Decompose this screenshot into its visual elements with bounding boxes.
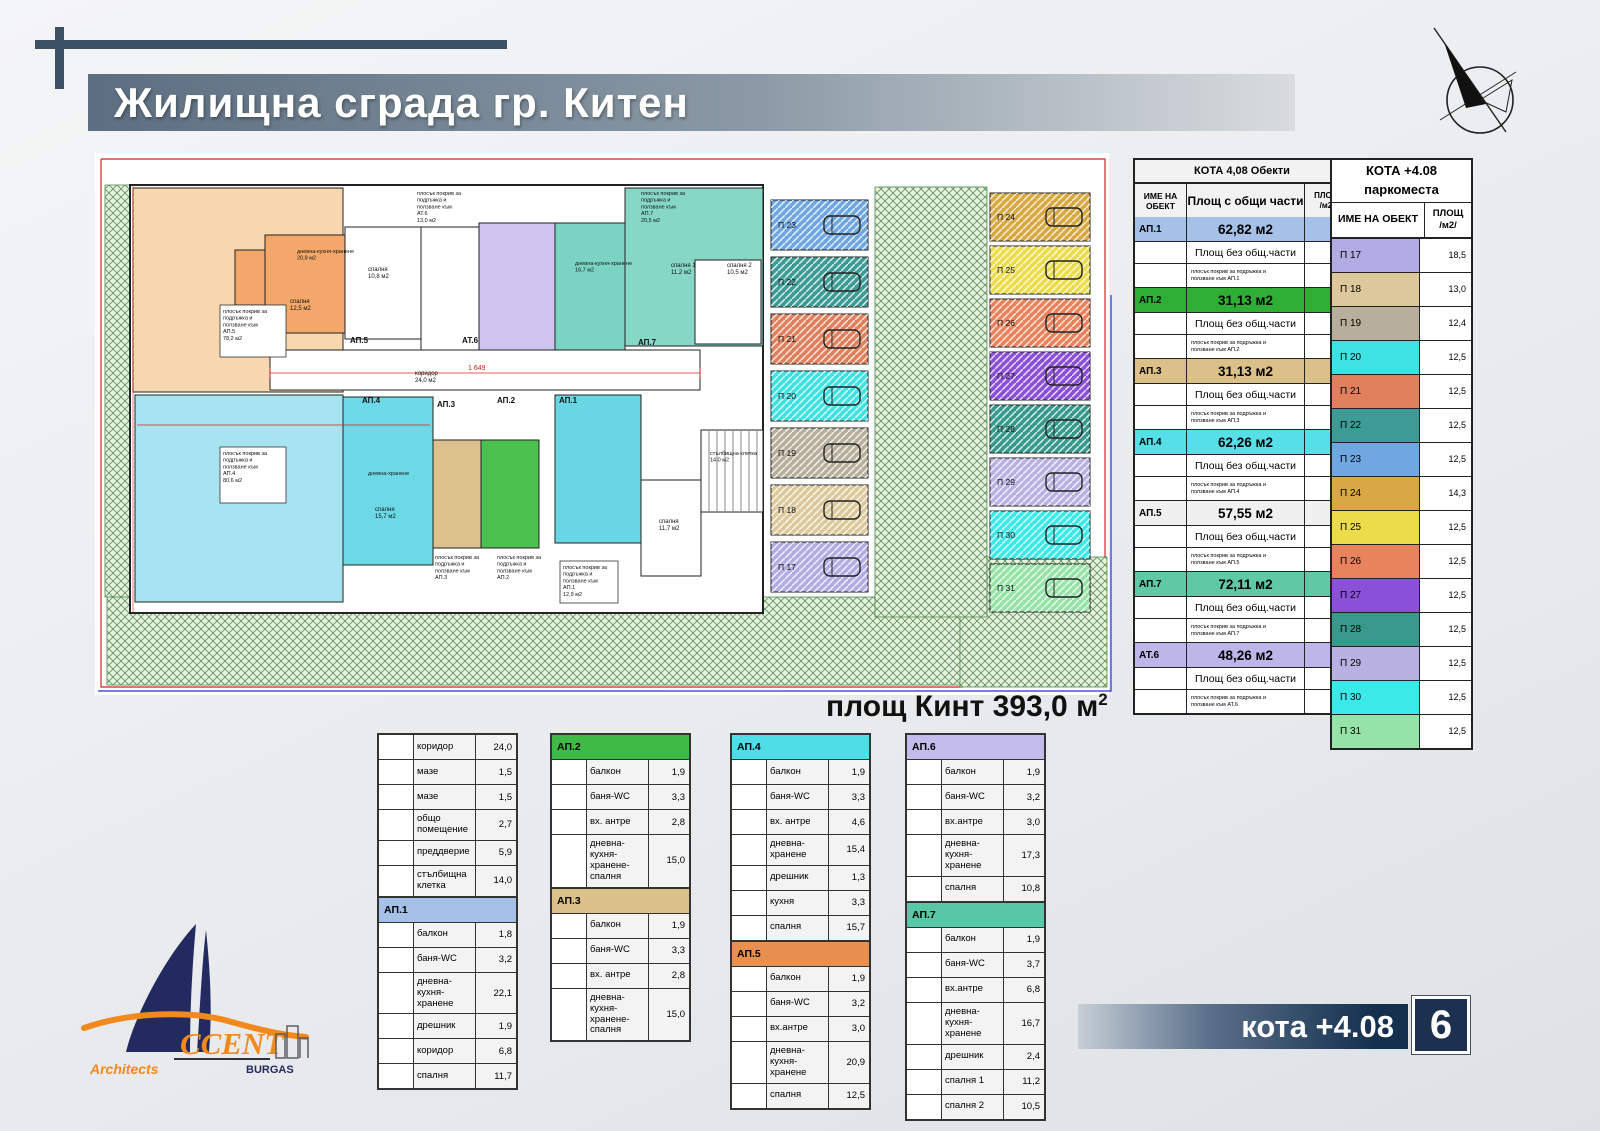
row-spacer	[379, 735, 414, 759]
objects-row-net: Площ без общ.части43,1	[1135, 667, 1349, 689]
object-name: АТ.6	[1135, 643, 1187, 667]
room-area: 1,9	[1004, 760, 1044, 784]
room-table-block: АП.3балкон1,9баня-WC3,3вх. антре2,8дневн…	[550, 889, 691, 1043]
roof-note: плосък покрив за подръжка иползване към …	[1187, 335, 1305, 358]
objects-row-roof: плосък покрив за подръжка иползване към …	[1135, 547, 1349, 571]
spacer	[1135, 477, 1187, 500]
room-area: 2,8	[649, 810, 689, 834]
parking-row: П 2112,5	[1332, 374, 1471, 408]
row-spacer	[379, 923, 414, 947]
roof-note: плосък покрив за подръжка иползване към …	[1187, 690, 1305, 713]
room-table-block: АП.4балкон1,9баня-WC3,3вх. антре4,6дневн…	[730, 733, 871, 942]
room-label: дрешник	[942, 1045, 1004, 1069]
room-label: баня-WC	[414, 948, 476, 972]
objects-row-net: Площ без общ.части64,4	[1135, 596, 1349, 618]
room-label: балкон	[414, 923, 476, 947]
row-spacer	[379, 810, 414, 840]
table-row: спалня 210,5	[907, 1095, 1044, 1119]
table-row: дрешник1,9	[379, 1014, 516, 1039]
room-label: баня-WC	[767, 992, 829, 1016]
row-spacer	[379, 1064, 414, 1088]
row-spacer	[552, 810, 587, 834]
room-area: 3,0	[1004, 810, 1044, 834]
table-row: балкон1,9	[552, 760, 689, 785]
room-area: 1,3	[829, 866, 869, 890]
room-label: балкон	[587, 760, 649, 784]
row-spacer	[732, 916, 767, 940]
row-spacer	[552, 989, 587, 1041]
plan-room	[235, 250, 265, 305]
room-area: 15,7	[829, 916, 869, 940]
table-row: дневна-кухня-хранене22,1	[379, 973, 516, 1015]
plan-room	[343, 397, 433, 565]
table-row: спалня11,7	[379, 1064, 516, 1088]
net-label: Площ без общ.части	[1187, 313, 1305, 334]
object-name: АП.2	[1135, 288, 1187, 312]
room-area: 22,1	[476, 973, 516, 1014]
room-label: стълбищна клетка	[414, 866, 476, 896]
plan-label: спалня15,7 м2	[375, 507, 396, 520]
room-table-block: АП.2балкон1,9баня-WC3,3вх. антре2,8дневн…	[550, 733, 691, 889]
corner-mark-horizontal	[35, 40, 507, 49]
table-row: дрешник1,3	[732, 866, 869, 891]
objects-table-header: ИМЕ НА ОБЕКТ Площ с общи части ПЛОЩ/м2/	[1135, 183, 1349, 217]
parking-row: П 2414,3	[1332, 476, 1471, 510]
object-total-area: 31,13 м2	[1187, 359, 1305, 383]
parking-row: П 2012,5	[1332, 340, 1471, 374]
col-header-name: ИМЕ НА ОБЕКТ	[1332, 203, 1425, 237]
plan-label: АТ.6	[462, 336, 479, 345]
spacer	[1135, 406, 1187, 429]
parking-row: П 1718,5	[1332, 238, 1471, 272]
parking-name: П 29	[1332, 647, 1420, 680]
parking-stall-label: П 17	[778, 562, 796, 572]
corner-mark-vertical	[55, 27, 64, 89]
room-label: дневна-хранене	[767, 835, 829, 865]
room-table-header: АП.6	[907, 735, 1044, 760]
room-label: вх. антре	[587, 810, 649, 834]
plan-label: АП.2	[497, 396, 516, 405]
room-label: балкон	[587, 914, 649, 938]
table-row: балкон1,8	[379, 923, 516, 948]
room-table-block: коридор24,0мазе1,5мазе1,5общо помещение2…	[377, 733, 518, 898]
row-spacer	[732, 891, 767, 915]
room-area: 2,8	[649, 964, 689, 988]
table-row: дневна-кухня-хранене-спалня15,0	[552, 835, 689, 887]
parking-table: КОТА +4.08паркоместа ИМЕ НА ОБЕКТ ПЛОЩ/м…	[1330, 158, 1473, 750]
room-table-column: коридор24,0мазе1,5мазе1,5общо помещение2…	[377, 733, 518, 1090]
table-row: балкон1,9	[907, 928, 1044, 953]
parking-area: 12,5	[1420, 681, 1471, 714]
objects-row-roof: плосък покрив за подръжка иползване към …	[1135, 689, 1349, 713]
plan-label: АП.1	[559, 396, 578, 405]
parking-row: П 1813,0	[1332, 272, 1471, 306]
room-area: 15,0	[649, 835, 689, 887]
room-label: вх.антре	[767, 1017, 829, 1041]
room-area: 20,9	[829, 1042, 869, 1083]
room-area: 1,9	[1004, 928, 1044, 952]
room-area: 1,9	[649, 760, 689, 784]
row-spacer	[732, 1017, 767, 1041]
objects-row-main: АП.331,13 м2	[1135, 358, 1349, 383]
table-row: коридор6,8	[379, 1039, 516, 1064]
room-area: 3,2	[829, 992, 869, 1016]
objects-row-roof: плосък покрив за подръжка иползване към …	[1135, 618, 1349, 642]
roof-note: плосък покрив за подръжка иползване към …	[1187, 548, 1305, 571]
row-spacer	[907, 785, 942, 809]
plan-room	[555, 223, 625, 351]
table-row: баня-WC3,2	[907, 785, 1044, 810]
table-row: баня-WC3,7	[907, 953, 1044, 978]
table-row: балкон1,9	[732, 760, 869, 785]
parking-row: П 2312,5	[1332, 442, 1471, 476]
parking-stall-label: П 24	[997, 212, 1015, 222]
room-label: спалня 2	[942, 1095, 1004, 1119]
room-table-header: АП.7	[907, 903, 1044, 928]
room-area: 3,2	[1004, 785, 1044, 809]
objects-row-net: Площ без общ.части27,8	[1135, 312, 1349, 334]
room-area: 3,3	[649, 939, 689, 963]
plan-label: спалня12,5 м2	[290, 299, 311, 312]
room-area: 1,9	[829, 967, 869, 991]
row-spacer	[907, 835, 942, 876]
roof-note: плосък покрив за подръжка иползване към …	[1187, 477, 1305, 500]
spacer	[1135, 264, 1187, 287]
room-area: 1,9	[476, 1014, 516, 1038]
row-spacer	[907, 1070, 942, 1094]
spacer	[1135, 597, 1187, 618]
objects-table: КОТА 4,08 Обекти ИМЕ НА ОБЕКТ Площ с общ…	[1133, 158, 1351, 715]
plan-label: АП.5	[350, 336, 369, 345]
parking-stall-label: П 18	[778, 505, 796, 515]
room-label: баня-WC	[942, 785, 1004, 809]
room-label: спалня	[767, 1084, 829, 1108]
spacer	[1135, 619, 1187, 642]
room-area: 2,4	[1004, 1045, 1044, 1069]
objects-row-net: Площ без общ.части27,8	[1135, 383, 1349, 405]
parking-area: 12,4	[1420, 307, 1471, 340]
row-spacer	[907, 953, 942, 977]
room-area: 6,8	[476, 1039, 516, 1063]
row-spacer	[379, 973, 414, 1014]
net-label: Площ без общ.части	[1187, 526, 1305, 547]
room-label: дрешник	[414, 1014, 476, 1038]
floor-plan: П 23П 22П 21П 20П 19П 18П 17П 24П 25П 26…	[85, 145, 1125, 705]
row-spacer	[732, 785, 767, 809]
room-area: 6,8	[1004, 978, 1044, 1002]
row-spacer	[552, 760, 587, 784]
parking-table-header: ИМЕ НА ОБЕКТ ПЛОЩ/м2/	[1332, 203, 1471, 238]
plot-kint-label: площ Кинт 393,0 м2	[826, 690, 1108, 724]
spacer	[1135, 690, 1187, 713]
room-area: 12,5	[829, 1084, 869, 1108]
parking-area: 12,5	[1420, 545, 1471, 578]
room-label: дневна-кухня-хранене	[767, 1042, 829, 1083]
room-area: 15,0	[649, 989, 689, 1041]
sheet-number: 6	[1430, 1003, 1452, 1048]
plan-room	[421, 227, 479, 351]
room-area: 1,9	[649, 914, 689, 938]
objects-row-net: Площ без общ.части56,1	[1135, 241, 1349, 263]
table-row: общо помещение2,7	[379, 810, 516, 841]
spacer	[1135, 548, 1187, 571]
room-area: 3,3	[649, 785, 689, 809]
row-spacer	[552, 835, 587, 887]
room-label: дневна-кухня-хранене-спалня	[587, 835, 649, 887]
objects-row-main: АП.231,13 м2	[1135, 287, 1349, 312]
net-label: Площ без общ.части	[1187, 242, 1305, 263]
parking-stall-label: П 27	[997, 371, 1015, 381]
table-row: баня-WC3,2	[379, 948, 516, 973]
room-label: вх. антре	[587, 964, 649, 988]
parking-stall-label: П 21	[778, 334, 796, 344]
parking-area: 13,0	[1420, 273, 1471, 306]
row-spacer	[552, 914, 587, 938]
room-area: 2,7	[476, 810, 516, 840]
parking-name: П 23	[1332, 443, 1420, 476]
room-label: спалня	[942, 877, 1004, 901]
parking-name: П 24	[1332, 477, 1420, 510]
net-label: Площ без общ.части	[1187, 597, 1305, 618]
table-row: спалня12,5	[732, 1084, 869, 1108]
plan-label: дневна-хранене	[368, 471, 409, 477]
spacer	[1135, 335, 1187, 358]
parking-row: П 3112,5	[1332, 714, 1471, 748]
room-table-column: АП.4балкон1,9баня-WC3,3вх. антре4,6дневн…	[730, 733, 871, 1110]
table-row: преддверие5,9	[379, 841, 516, 866]
room-label: преддверие	[414, 841, 476, 865]
room-table-header: АП.1	[379, 898, 516, 923]
room-label: мазе	[414, 760, 476, 784]
room-area: 3,2	[476, 948, 516, 972]
col-header-area: ПЛОЩ/м2/	[1425, 203, 1471, 237]
parking-stall-label: П 19	[778, 448, 796, 458]
compass-rose-icon	[1420, 20, 1530, 145]
row-spacer	[732, 866, 767, 890]
object-name: АП.3	[1135, 359, 1187, 383]
object-name: АП.1	[1135, 217, 1187, 241]
object-name: АП.7	[1135, 572, 1187, 596]
table-row: баня-WC3,3	[732, 785, 869, 810]
room-label: спалня 1	[942, 1070, 1004, 1094]
room-label: баня-WC	[587, 785, 649, 809]
plan-room	[555, 395, 641, 543]
plan-label: 1 649	[468, 365, 486, 372]
row-spacer	[907, 928, 942, 952]
room-label: общо помещение	[414, 810, 476, 840]
parking-area: 12,5	[1420, 443, 1471, 476]
room-table-block: АП.7балкон1,9баня-WC3,7вх.антре6,8дневна…	[905, 903, 1046, 1121]
table-row: коридор24,0	[379, 735, 516, 760]
objects-row-roof: плосък покрив за подръжка иползване към …	[1135, 334, 1349, 358]
net-label: Площ без общ.части	[1187, 668, 1305, 689]
parking-name: П 19	[1332, 307, 1420, 340]
objects-table-title: КОТА 4,08 Обекти	[1135, 160, 1349, 183]
col-header-name: ИМЕ НА ОБЕКТ	[1135, 184, 1187, 217]
parking-stall-label: П 31	[997, 583, 1015, 593]
row-spacer	[732, 1042, 767, 1083]
sheet-number-badge: 6	[1412, 996, 1470, 1054]
roof-note: плосък покрив за подръжка иползване към …	[1187, 619, 1305, 642]
drawing-sheet: Жилищна сграда гр. Китен	[0, 0, 1600, 1131]
roof-note: плосък покрив за подръжка иползване към …	[1187, 406, 1305, 429]
parking-name: П 22	[1332, 409, 1420, 442]
room-label: балкон	[767, 760, 829, 784]
parking-row: П 1912,4	[1332, 306, 1471, 340]
plan-room	[479, 223, 555, 351]
room-label: баня-WC	[942, 953, 1004, 977]
room-table-block: АП.5балкон1,9баня-WC3,2вх.антре3,0дневна…	[730, 942, 871, 1110]
row-spacer	[552, 785, 587, 809]
lawn-hatch	[875, 187, 987, 617]
objects-row-roof: плосък покрив за подръжка иползване към …	[1135, 405, 1349, 429]
parking-row: П 3012,5	[1332, 680, 1471, 714]
table-row: дневна-кухня-хранене-спалня15,0	[552, 989, 689, 1041]
room-area: 11,7	[476, 1064, 516, 1088]
object-total-area: 62,82 м2	[1187, 217, 1305, 241]
spacer	[1135, 384, 1187, 405]
logo-ccent-text: CCENT	[180, 1026, 284, 1061]
parking-stall-label: П 28	[997, 424, 1015, 434]
net-label: Площ без общ.части	[1187, 384, 1305, 405]
row-spacer	[552, 939, 587, 963]
room-label: дневна-кухня-хранене-спалня	[587, 989, 649, 1041]
row-spacer	[732, 760, 767, 784]
col-header-with-common: Площ с общи части	[1187, 184, 1305, 217]
room-table-column: АП.2балкон1,9баня-WC3,3вх. антре2,8дневн…	[550, 733, 691, 1042]
room-area: 14,0	[476, 866, 516, 896]
table-row: дневна-хранене15,4	[732, 835, 869, 866]
table-row: спалня 111,2	[907, 1070, 1044, 1095]
table-row: вх.антре3,0	[732, 1017, 869, 1042]
room-label: балкон	[767, 967, 829, 991]
parking-row: П 2212,5	[1332, 408, 1471, 442]
parking-name: П 28	[1332, 613, 1420, 646]
parking-stall-label: П 30	[997, 530, 1015, 540]
room-area: 1,5	[476, 760, 516, 784]
parking-row: П 2612,5	[1332, 544, 1471, 578]
room-label: коридор	[414, 1039, 476, 1063]
table-row: баня-WC3,3	[552, 939, 689, 964]
parking-name: П 31	[1332, 715, 1420, 748]
row-spacer	[732, 810, 767, 834]
plan-room	[701, 430, 763, 512]
room-label: баня-WC	[767, 785, 829, 809]
parking-stall-label: П 20	[778, 391, 796, 401]
room-table-column: АП.6балкон1,9баня-WC3,2вх.антре3,0дневна…	[905, 733, 1046, 1121]
table-row: вх.антре6,8	[907, 978, 1044, 1003]
objects-row-roof: плосък покрив за подръжка иползване към …	[1135, 476, 1349, 500]
object-total-area: 31,13 м2	[1187, 288, 1305, 312]
row-spacer	[732, 1084, 767, 1108]
spacer	[1135, 242, 1187, 263]
room-label: баня-WC	[587, 939, 649, 963]
table-row: баня-WC3,2	[732, 992, 869, 1017]
plan-label: АП.3	[437, 400, 456, 409]
table-row: дневна-кухня-хранене17,3	[907, 835, 1044, 877]
room-label: дневна-кухня-хранене	[414, 973, 476, 1014]
room-area: 11,2	[1004, 1070, 1044, 1094]
row-spacer	[732, 967, 767, 991]
footer-elevation-bar: кота +4.08	[1078, 1004, 1408, 1049]
parking-area: 12,5	[1420, 613, 1471, 646]
parking-area: 12,5	[1420, 375, 1471, 408]
row-spacer	[907, 1003, 942, 1044]
net-label: Площ без общ.части	[1187, 455, 1305, 476]
parking-name: П 20	[1332, 341, 1420, 374]
row-spacer	[907, 978, 942, 1002]
parking-area: 12,5	[1420, 579, 1471, 612]
parking-area: 12,5	[1420, 511, 1471, 544]
parking-area: 18,5	[1420, 239, 1471, 272]
objects-row-main: АП.772,11 м2	[1135, 571, 1349, 596]
spacer	[1135, 455, 1187, 476]
parking-name: П 25	[1332, 511, 1420, 544]
logo-architects-text: Architects	[89, 1061, 159, 1077]
room-area: 4,6	[829, 810, 869, 834]
table-row: вх.антре3,0	[907, 810, 1044, 835]
spacer	[1135, 313, 1187, 334]
room-area: 17,3	[1004, 835, 1044, 876]
parking-name: П 21	[1332, 375, 1420, 408]
table-row: спалня15,7	[732, 916, 869, 940]
plan-label: спалня11,7 м2	[659, 519, 680, 532]
parking-row: П 2512,5	[1332, 510, 1471, 544]
room-area: 1,9	[829, 760, 869, 784]
table-row: мазе1,5	[379, 760, 516, 785]
plan-label: коридор24,0 м2	[415, 371, 439, 384]
plan-room	[345, 227, 421, 339]
parking-row: П 2812,5	[1332, 612, 1471, 646]
objects-row-main: АП.462,26 м2	[1135, 429, 1349, 454]
title-bar: Жилищна сграда гр. Китен	[88, 74, 1295, 131]
room-area: 1,8	[476, 923, 516, 947]
room-label: спалня	[767, 916, 829, 940]
logo-city-text: BURGAS	[246, 1064, 294, 1076]
room-label: дневна-кухня-хранене	[942, 1003, 1004, 1044]
room-label: вх.антре	[942, 810, 1004, 834]
object-name: АП.4	[1135, 430, 1187, 454]
room-table-block: АП.1балкон1,8баня-WC3,2дневна-кухня-хран…	[377, 898, 518, 1091]
room-area: 1,5	[476, 785, 516, 809]
room-label: вх. антре	[767, 810, 829, 834]
objects-row-net: Площ без общ.части55,6	[1135, 454, 1349, 476]
spacer	[1135, 668, 1187, 689]
table-row: спалня10,8	[907, 877, 1044, 901]
room-area: 3,7	[1004, 953, 1044, 977]
parking-area: 12,5	[1420, 341, 1471, 374]
row-spacer	[379, 1014, 414, 1038]
object-total-area: 72,11 м2	[1187, 572, 1305, 596]
table-row: дрешник2,4	[907, 1045, 1044, 1070]
room-area: 15,4	[829, 835, 869, 865]
room-area: 24,0	[476, 735, 516, 759]
row-spacer	[732, 835, 767, 865]
parking-stall-label: П 23	[778, 220, 796, 230]
room-label: балкон	[942, 928, 1004, 952]
room-table-header: АП.3	[552, 889, 689, 914]
parking-name: П 26	[1332, 545, 1420, 578]
room-label: спалня	[414, 1064, 476, 1088]
table-row: вх. антре2,8	[552, 810, 689, 835]
object-name: АП.5	[1135, 501, 1187, 525]
row-spacer	[907, 1045, 942, 1069]
row-spacer	[379, 866, 414, 896]
page-title: Жилищна сграда гр. Китен	[88, 79, 689, 127]
parking-name: П 30	[1332, 681, 1420, 714]
object-total-area: 57,55 м2	[1187, 501, 1305, 525]
accent-architects-logo: CCENT Architects BURGAS	[78, 918, 313, 1078]
